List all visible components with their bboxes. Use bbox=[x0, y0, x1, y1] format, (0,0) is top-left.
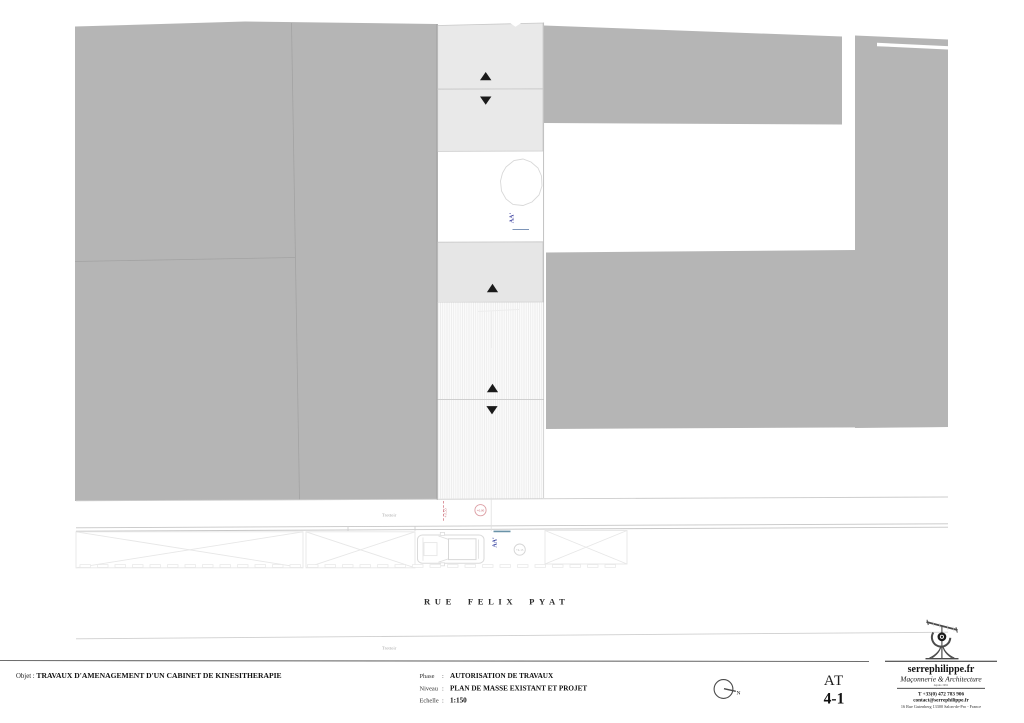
svg-text:AA': AA' bbox=[493, 537, 499, 548]
svg-text:+3.55: +3.55 bbox=[443, 508, 448, 517]
svg-text:AT: AT bbox=[824, 673, 844, 689]
svg-text:Niveau: Niveau bbox=[420, 686, 439, 693]
svg-text:Trottoir: Trottoir bbox=[382, 646, 397, 651]
svg-text:contact@serrephilippe.fr: contact@serrephilippe.fr bbox=[913, 698, 969, 704]
svg-text:+0.00: +0.00 bbox=[477, 509, 485, 513]
svg-text:1:150: 1:150 bbox=[450, 697, 467, 705]
svg-text::: : bbox=[442, 686, 444, 693]
svg-text:Phase: Phase bbox=[420, 673, 435, 680]
svg-text:T +33(0) 472 783 906: T +33(0) 472 783 906 bbox=[918, 690, 964, 697]
svg-text:Objet : TRAVAUX D'AMENAGEMENT: Objet : TRAVAUX D'AMENAGEMENT D'UN CABIN… bbox=[16, 671, 282, 680]
svg-text:PLAN DE MASSE EXISTANT ET PROJ: PLAN DE MASSE EXISTANT ET PROJET bbox=[450, 685, 587, 693]
svg-text:+4.15: +4.15 bbox=[516, 548, 524, 552]
svg-text:RUE FELIX PYAT: RUE FELIX PYAT bbox=[424, 597, 569, 607]
svg-text:serrephilippe.fr: serrephilippe.fr bbox=[908, 664, 975, 675]
svg-text:depuis 1991: depuis 1991 bbox=[934, 683, 949, 687]
svg-text::: : bbox=[442, 673, 444, 680]
svg-text:Echelle: Echelle bbox=[420, 698, 439, 705]
svg-text:4-1: 4-1 bbox=[824, 691, 845, 708]
svg-text:AA': AA' bbox=[510, 213, 516, 224]
svg-text:N: N bbox=[737, 691, 741, 697]
svg-text:AUTORISATION DE TRAVAUX: AUTORISATION DE TRAVAUX bbox=[450, 672, 554, 680]
svg-text::: : bbox=[442, 698, 444, 705]
svg-text:16 Rue Gutenberg 13300 Salon-d: 16 Rue Gutenberg 13300 Salon-de-Pro - Fr… bbox=[901, 704, 981, 709]
svg-text:Trottoir: Trottoir bbox=[382, 513, 397, 518]
